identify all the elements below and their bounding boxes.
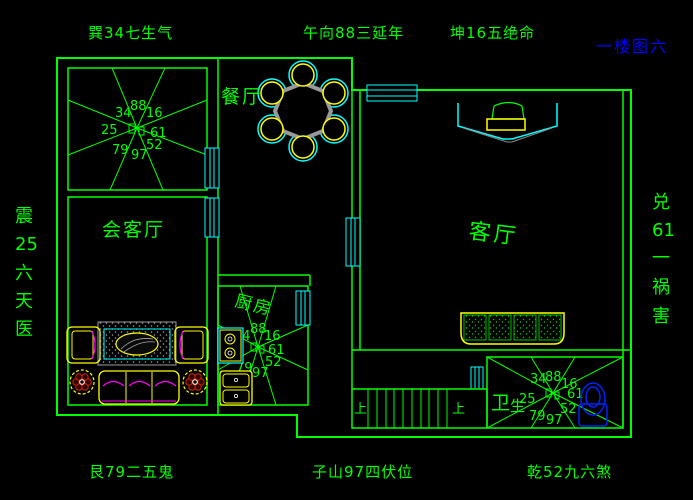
armchair-left [67, 327, 100, 363]
window-kitchen-east [296, 291, 310, 325]
label-qian-bottom-right: 乾52九六煞 [527, 463, 612, 481]
right-char: 害 [652, 306, 670, 327]
right-char: 61 [652, 220, 675, 241]
dining-table-set [258, 61, 348, 161]
kitchen-sink [220, 371, 252, 405]
kitchen-label: 厨房 [233, 291, 275, 320]
tv-unit [458, 103, 557, 143]
star-number: 79 [112, 143, 129, 158]
stove [218, 328, 243, 363]
stairs-up-label-left: 上 [354, 402, 367, 417]
window-dining-west [205, 148, 219, 188]
flying-star-northwest-room: 34 88 16 25 61 79 97 52 [68, 68, 207, 190]
reception-sofa-set [67, 322, 208, 404]
star-number: 52 [560, 402, 577, 417]
living-sofa [461, 313, 564, 344]
dining-room-label: 餐厅 [221, 86, 263, 108]
label-zishan-bottom-center: 子山97四伏位 [312, 463, 413, 481]
bathroom-label-char2: 生 [510, 397, 525, 415]
window-reception-east [205, 198, 219, 237]
floor-plan-drawing: 34 88 16 25 61 79 97 52 34 88 16 25 61 7… [0, 0, 693, 500]
plant-right [183, 370, 207, 394]
coffee-table [116, 333, 158, 355]
left-char: 25 [15, 234, 38, 255]
star-number: 52 [146, 138, 163, 153]
right-char: 祸 [652, 277, 670, 298]
label-kun-top-right: 坤16五绝命 [450, 24, 535, 42]
star-number: 25 [101, 123, 118, 138]
star-number: 79 [529, 409, 546, 424]
tv-base [487, 119, 525, 130]
star-number: 88 [545, 370, 562, 385]
right-char: 兑 [652, 192, 670, 213]
staircase: 上 上 [352, 389, 487, 428]
toilet [579, 383, 607, 426]
living-room-label: 客厅 [467, 219, 520, 250]
left-char: 六 [15, 263, 33, 284]
label-dui-right-column: 兑 61 一 祸 害 [652, 192, 675, 327]
tv-cabinet [458, 103, 557, 139]
star-number: 16 [264, 329, 281, 344]
label-xun-top-left: 巽34七生气 [88, 24, 173, 42]
star-number: 16 [146, 106, 163, 121]
left-char: 天 [15, 291, 33, 312]
left-char: 震 [15, 206, 33, 227]
bathroom-door [471, 367, 483, 389]
armchair-right [175, 327, 208, 363]
reception-room-label: 会客厅 [102, 219, 165, 241]
stairs-up-label-right: 上 [452, 402, 465, 417]
tv-screen [492, 103, 524, 120]
sheet-title: 一楼图六 [596, 37, 668, 56]
label-gen-bottom-left: 艮79二五鬼 [89, 463, 174, 481]
plant-left [70, 370, 94, 394]
window-living-west [346, 218, 360, 266]
floor-plan-canvas[interactable]: 34 88 16 25 61 79 97 52 34 88 16 25 61 7… [0, 0, 693, 500]
label-zhen-left-column: 震 25 六 天 医 [15, 206, 38, 340]
three-seat-sofa [99, 371, 179, 404]
bathroom-label-char1: 卫 [491, 392, 510, 414]
right-char: 一 [652, 248, 670, 269]
window-living-north [367, 85, 417, 101]
left-char: 医 [15, 319, 33, 340]
label-wu-top-center: 午向88三延年 [303, 24, 404, 42]
star-number: 88 [130, 99, 147, 114]
star-number: 52 [265, 355, 282, 370]
